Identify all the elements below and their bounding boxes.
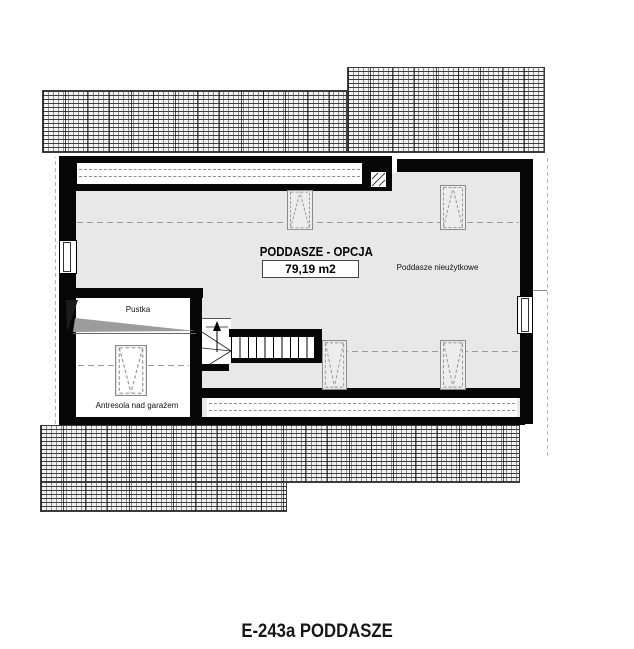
stair-up-arrow-icon: [202, 318, 231, 364]
knee-wall-band-bottom: [207, 398, 517, 417]
eave-line-right: [547, 156, 548, 456]
wall-under-winder: [202, 364, 229, 371]
label-unusable-attic: Poddasze nieużytkowe: [355, 263, 520, 272]
skylight-icon: [440, 340, 466, 390]
skylight-icon: [287, 190, 313, 230]
chimney-icon: [370, 171, 387, 188]
stair-treads: [231, 337, 314, 359]
room-title: PODDASZE - OPCJA: [230, 244, 402, 259]
wall-bottom-inner: [197, 388, 523, 398]
roof-hatch-bottom-left: [40, 482, 287, 512]
label-void: Pustka: [105, 305, 171, 314]
room-area-value: 79,19 m2: [285, 262, 336, 276]
eave-line-left: [55, 157, 56, 424]
floor-plan: PODDASZE - OPCJA 79,19 m2 Poddasze nieuż…: [0, 0, 634, 649]
label-mezzanine: Antresola nad garażem: [77, 401, 197, 410]
wall-bottom-outer: [59, 417, 525, 425]
roof-hatch-top-left: [42, 90, 347, 153]
eave-connector: [533, 290, 547, 291]
wall-top-right: [397, 159, 533, 172]
skylight-icon: [115, 345, 147, 396]
drawing-title: E-243a PODDASZE: [0, 621, 634, 643]
window-icon: [517, 296, 533, 334]
stair-bottom-rail: [231, 358, 314, 363]
window-icon: [59, 240, 77, 274]
skylight-icon: [440, 185, 466, 230]
roof-hatch-top-right: [347, 67, 545, 153]
wall-mezzanine-top: [59, 288, 203, 298]
skylight-icon: [322, 340, 347, 390]
wall-right: [520, 159, 533, 424]
void-gable-shape: [59, 298, 199, 338]
roof-hatch-bottom: [40, 425, 520, 483]
knee-wall-band-top: [77, 163, 362, 184]
stair-top-rail: [229, 329, 322, 337]
stair-right-rail: [314, 329, 322, 363]
room-area-box: 79,19 m2: [262, 260, 359, 278]
